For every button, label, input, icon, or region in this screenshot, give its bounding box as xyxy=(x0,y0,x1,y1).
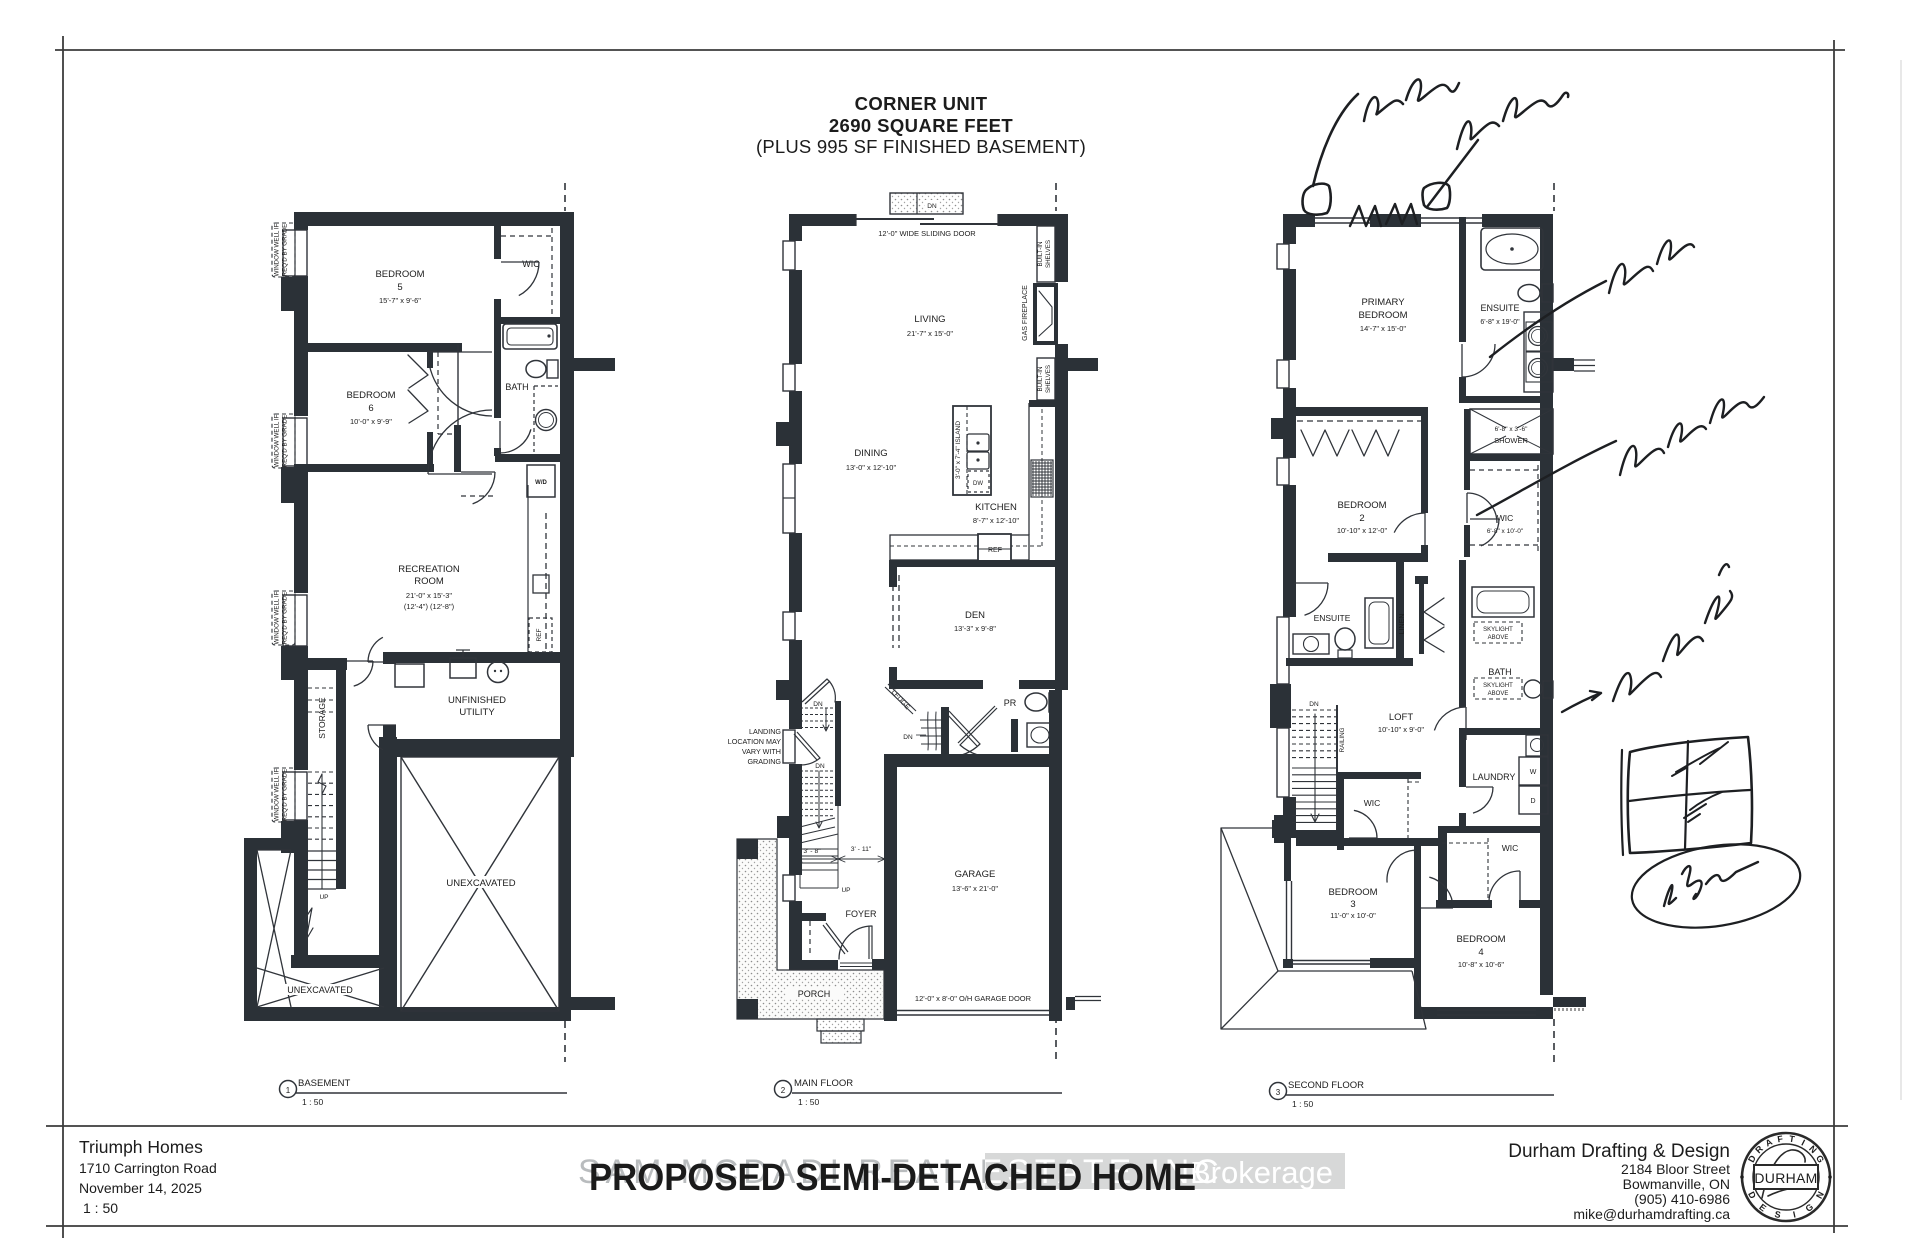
svg-text:DEN: DEN xyxy=(965,610,985,621)
svg-text:REF: REF xyxy=(988,547,1002,554)
svg-text:3' - 8": 3' - 8" xyxy=(803,848,821,855)
svg-text:November 14, 2025: November 14, 2025 xyxy=(79,1180,202,1196)
svg-text:W/D: W/D xyxy=(535,480,547,486)
svg-text:WINDOW WELL IF: WINDOW WELL IF xyxy=(274,223,281,276)
svg-text:WINDOW WELL IF: WINDOW WELL IF xyxy=(274,414,281,467)
svg-text:WIC: WIC xyxy=(1364,798,1381,808)
svg-text:UNEXCAVATED: UNEXCAVATED xyxy=(287,985,353,995)
svg-text:VARY WITH: VARY WITH xyxy=(742,747,781,756)
svg-text:Durham Drafting & Design: Durham Drafting & Design xyxy=(1508,1141,1730,1162)
svg-text:10'-0" x 9'-9": 10'-0" x 9'-9" xyxy=(350,417,392,426)
svg-text:STORAGE: STORAGE xyxy=(317,697,327,739)
svg-text:SHELVES: SHELVES xyxy=(1045,240,1052,268)
svg-text:DINING: DINING xyxy=(854,448,887,459)
svg-text:10'-8" x 10'-6": 10'-8" x 10'-6" xyxy=(1458,960,1504,969)
svg-text:WIC: WIC xyxy=(1502,843,1519,853)
svg-text:12'-0" WIDE SLIDING DOOR: 12'-0" WIDE SLIDING DOOR xyxy=(878,229,976,238)
svg-text:13'-6" x 21'-0": 13'-6" x 21'-0" xyxy=(952,884,998,893)
svg-text:6'-8" x 10'-0": 6'-8" x 10'-0" xyxy=(1487,528,1524,535)
svg-text:14'-7" x 15'-0": 14'-7" x 15'-0" xyxy=(1360,324,1406,333)
svg-text:LINEN: LINEN xyxy=(1399,614,1406,635)
svg-text:1: 1 xyxy=(286,1086,291,1095)
svg-text:Brokerage: Brokerage xyxy=(1190,1155,1333,1190)
svg-text:Bowmanville, ON: Bowmanville, ON xyxy=(1623,1176,1730,1192)
svg-text:ROOM: ROOM xyxy=(414,576,444,587)
svg-text:(905) 410-6986: (905) 410-6986 xyxy=(1634,1191,1730,1207)
svg-text:BEDROOM: BEDROOM xyxy=(1358,310,1407,321)
svg-text:LAUNDRY: LAUNDRY xyxy=(1473,772,1516,782)
svg-text:UTILITY: UTILITY xyxy=(459,707,495,718)
svg-text:SKYLIGHT: SKYLIGHT xyxy=(1483,683,1513,689)
svg-text:BEDROOM: BEDROOM xyxy=(1456,934,1505,945)
svg-text:Triumph Homes: Triumph Homes xyxy=(79,1137,203,1157)
svg-text:D: D xyxy=(1530,798,1535,805)
svg-text:BATH: BATH xyxy=(1488,667,1511,677)
svg-text:DW: DW xyxy=(973,481,983,487)
svg-text:2184 Bloor Street: 2184 Bloor Street xyxy=(1621,1161,1730,1177)
svg-text:UNEXCAVATED: UNEXCAVATED xyxy=(446,878,515,889)
svg-text:(12'-4") (12'-8"): (12'-4") (12'-8") xyxy=(404,602,455,611)
svg-text:SKYLIGHT: SKYLIGHT xyxy=(1483,627,1513,633)
svg-text:8'-7" x 12'-10": 8'-7" x 12'-10" xyxy=(973,516,1019,525)
svg-text:1 : 50: 1 : 50 xyxy=(798,1097,820,1107)
svg-text:1 : 50: 1 : 50 xyxy=(302,1097,324,1107)
svg-text:UP: UP xyxy=(841,887,850,894)
svg-text:2690 SQUARE FEET: 2690 SQUARE FEET xyxy=(829,115,1014,136)
svg-text:DN: DN xyxy=(813,701,823,708)
svg-text:WIC: WIC xyxy=(522,259,540,269)
svg-text:12'-0" x 8'-0" O/H GARAGE DOOR: 12'-0" x 8'-0" O/H GARAGE DOOR xyxy=(915,994,1032,1003)
svg-text:REQ'D BY GRADE: REQ'D BY GRADE xyxy=(282,415,289,468)
svg-text:ENSUITE: ENSUITE xyxy=(1314,613,1351,623)
svg-text:FOYER: FOYER xyxy=(845,909,877,919)
svg-text:DN: DN xyxy=(927,203,937,210)
svg-text:6: 6 xyxy=(368,403,373,414)
svg-text:1 : 50: 1 : 50 xyxy=(1292,1099,1314,1109)
svg-text:BASEMENT: BASEMENT xyxy=(298,1078,350,1089)
svg-text:ENSUITE: ENSUITE xyxy=(1480,303,1519,313)
svg-text:(PLUS 995 SF FINISHED BASEMENT: (PLUS 995 SF FINISHED BASEMENT) xyxy=(756,136,1086,157)
svg-text:3'-0" x 7'-4" ISLAND: 3'-0" x 7'-4" ISLAND xyxy=(955,421,962,479)
svg-text:SHELVES: SHELVES xyxy=(1045,365,1052,393)
svg-text:BUILT-IN: BUILT-IN xyxy=(1037,242,1044,267)
svg-text:4: 4 xyxy=(1478,947,1483,958)
svg-text:RAILING: RAILING xyxy=(1339,727,1346,752)
svg-text:ABOVE: ABOVE xyxy=(1488,635,1509,641)
svg-text:DN: DN xyxy=(903,734,913,741)
svg-text:BUILT-IN: BUILT-IN xyxy=(1037,367,1044,392)
svg-text:WINDOW WELL IF: WINDOW WELL IF xyxy=(274,591,281,644)
svg-text:6'-8" x 3'-6": 6'-8" x 3'-6" xyxy=(1495,426,1528,433)
svg-text:10'-10" x 12'-0": 10'-10" x 12'-0" xyxy=(1337,526,1388,535)
svg-text:UP: UP xyxy=(319,894,328,901)
svg-text:GRADING: GRADING xyxy=(747,757,781,766)
svg-text:6'-8" x 19'-0": 6'-8" x 19'-0" xyxy=(1480,319,1520,326)
svg-text:PROPOSED SEMI-DETACHED HOME: PROPOSED SEMI-DETACHED HOME xyxy=(589,1157,1196,1199)
svg-text:DURHAM: DURHAM xyxy=(1754,1170,1817,1186)
svg-text:BEDROOM: BEDROOM xyxy=(346,390,395,401)
svg-text:WINDOW WELL IF: WINDOW WELL IF xyxy=(274,768,281,821)
svg-text:LOCATION MAY: LOCATION MAY xyxy=(728,737,781,746)
svg-text:PR: PR xyxy=(1004,698,1017,708)
svg-text:2: 2 xyxy=(781,1086,786,1095)
svg-text:GAS FIREPLACE: GAS FIREPLACE xyxy=(1022,285,1029,341)
svg-text:BEDROOM: BEDROOM xyxy=(375,269,424,280)
svg-text:GARAGE: GARAGE xyxy=(955,869,996,880)
svg-text:REQ'D BY GRADE: REQ'D BY GRADE xyxy=(282,769,289,822)
svg-text:10'-10" x 9'-0": 10'-10" x 9'-0" xyxy=(1378,725,1424,734)
svg-text:MAIN FLOOR: MAIN FLOOR xyxy=(794,1078,853,1089)
svg-text:W: W xyxy=(1530,769,1537,776)
svg-text:21'-0" x 15'-3": 21'-0" x 15'-3" xyxy=(406,591,452,600)
svg-text:ABOVE: ABOVE xyxy=(1488,691,1509,697)
svg-text:BATH: BATH xyxy=(505,382,528,392)
svg-text:PRIMARY: PRIMARY xyxy=(1361,297,1405,308)
svg-text:REF: REF xyxy=(536,628,543,641)
svg-text:LIVING: LIVING xyxy=(914,314,945,325)
svg-text:21'-7" x 15'-0": 21'-7" x 15'-0" xyxy=(907,329,953,338)
svg-text:DN: DN xyxy=(815,763,825,770)
svg-text:1710 Carrington Road: 1710 Carrington Road xyxy=(79,1160,217,1176)
svg-text:3' - 11": 3' - 11" xyxy=(851,846,872,853)
svg-text:LOFT: LOFT xyxy=(1389,712,1413,723)
svg-text:3: 3 xyxy=(1350,899,1355,910)
svg-text:BEDROOM: BEDROOM xyxy=(1328,887,1377,898)
svg-text:SECOND FLOOR: SECOND FLOOR xyxy=(1288,1080,1364,1091)
svg-text:3: 3 xyxy=(1276,1088,1281,1097)
svg-text:PORCH: PORCH xyxy=(798,989,831,999)
svg-text:KITCHEN: KITCHEN xyxy=(975,502,1017,513)
svg-text:11'-0" x 10'-0": 11'-0" x 10'-0" xyxy=(1330,911,1376,920)
svg-text:RECREATION: RECREATION xyxy=(398,564,460,575)
svg-text:13'-0" x 12'-10": 13'-0" x 12'-10" xyxy=(846,463,897,472)
svg-text:13'-3" x 9'-8": 13'-3" x 9'-8" xyxy=(954,624,996,633)
svg-text:2: 2 xyxy=(1359,513,1364,524)
svg-text:1 : 50: 1 : 50 xyxy=(83,1200,118,1216)
svg-text:mike@durhamdrafting.ca: mike@durhamdrafting.ca xyxy=(1573,1206,1730,1222)
svg-text:LANDING: LANDING xyxy=(749,727,781,736)
svg-text:SHOWER: SHOWER xyxy=(1494,436,1528,445)
svg-text:CORNER UNIT: CORNER UNIT xyxy=(855,93,988,114)
svg-text:REQ'D BY GRADE: REQ'D BY GRADE xyxy=(282,592,289,645)
svg-text:UNFINISHED: UNFINISHED xyxy=(448,695,506,706)
svg-text:REQ'D BY GRADE: REQ'D BY GRADE xyxy=(282,224,289,277)
svg-text:BEDROOM: BEDROOM xyxy=(1337,500,1386,511)
svg-text:DN: DN xyxy=(1309,701,1319,708)
svg-text:15'-7" x 9'-6": 15'-7" x 9'-6" xyxy=(379,296,421,305)
svg-text:5: 5 xyxy=(397,282,402,293)
